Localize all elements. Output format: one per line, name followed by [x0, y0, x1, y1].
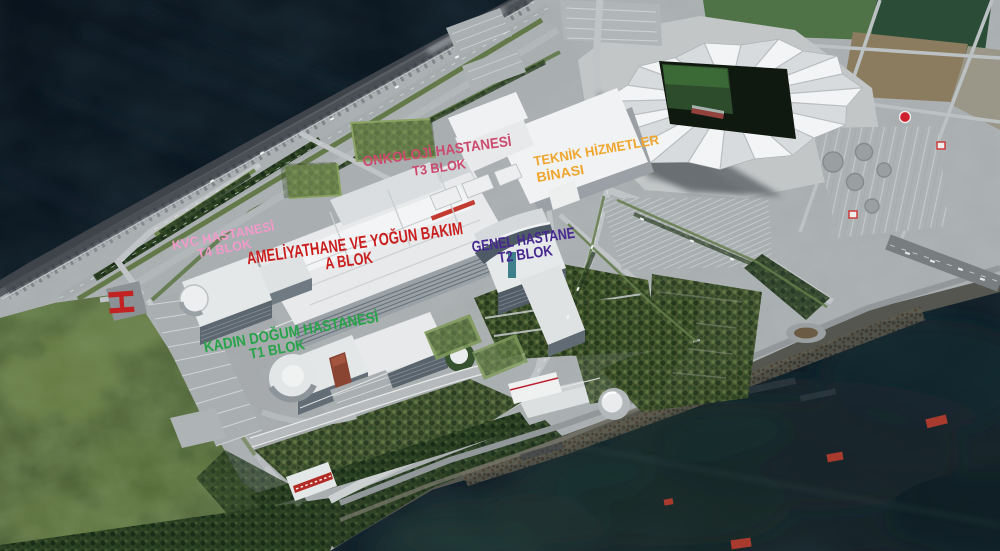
svg-text:H: H	[100, 288, 143, 317]
